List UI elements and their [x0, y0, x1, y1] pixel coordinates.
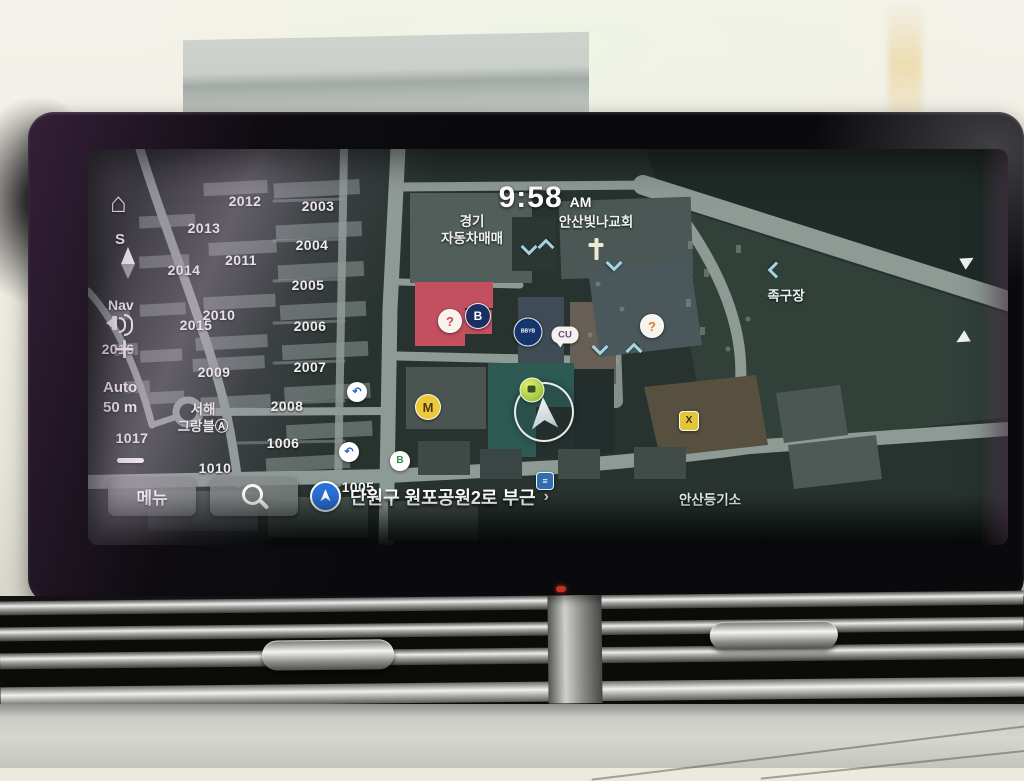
lane-chevron-icon [538, 239, 555, 256]
poi-brand-b[interactable]: B [465, 303, 491, 329]
poi-brand-red[interactable]: ? [438, 309, 462, 333]
address-chevron-icon: › [544, 488, 549, 506]
speed-camera-badge-icon [520, 378, 545, 403]
vent-slat [0, 617, 1024, 642]
zoom-scale-label: 50 m [103, 399, 137, 416]
map-parcel-number: 2012 [229, 193, 262, 209]
home-icon[interactable]: ⌂ [110, 189, 127, 217]
zoom-in-button[interactable]: + [114, 331, 135, 367]
clock-time: 9:58 [499, 181, 563, 215]
lane-chevron-icon [521, 239, 538, 256]
fascia-seam [761, 746, 1024, 779]
lane-chevron-icon [606, 255, 623, 272]
compass-letter: S [115, 231, 125, 248]
status-led [556, 586, 566, 592]
navigation-display[interactable]: 2012200320132004201120142005201020152006… [88, 149, 1008, 545]
zoom-out-button[interactable] [117, 458, 144, 463]
uturn-marker[interactable]: ↶ [347, 382, 367, 402]
current-address-bar[interactable]: 단원구 원포공원2로 부근 › [310, 481, 549, 512]
wall-glare [888, 0, 922, 118]
lower-fascia [0, 704, 1024, 768]
current-address: 단원구 원포공원2로 부근 [350, 484, 536, 510]
lane-chevron-icon [768, 262, 785, 279]
poi-brand-orange[interactable]: ? [640, 314, 664, 338]
poi-cu-store[interactable]: CU [552, 327, 579, 344]
map-parcel-number: 2005 [292, 277, 325, 293]
air-vents [0, 591, 1024, 712]
bottom-bar: 메뉴 단원구 원포공원2로 부근 › [88, 475, 1008, 519]
map-parcel-number: 1017 [116, 430, 149, 446]
map-place-label: 경기 자동차매매 [441, 214, 503, 248]
map-place-label: 족구장 [767, 289, 804, 306]
map-parcel-number: 2013 [188, 220, 221, 236]
search-icon [242, 484, 263, 505]
map-parcel-number: 2004 [296, 237, 329, 253]
map-parcel-number: 2015 [180, 317, 213, 333]
search-button[interactable] [210, 477, 298, 516]
nav-volume-label: Nav [108, 297, 134, 313]
map-parcel-number: 2008 [271, 398, 304, 414]
vent-divider [547, 595, 602, 704]
map-parcel-number: 2006 [294, 318, 327, 334]
map-parcel-number: 1006 [267, 435, 300, 451]
dashboard-fascia [0, 596, 1024, 768]
menu-button[interactable]: 메뉴 [108, 477, 196, 516]
dashboard-photo: 2012200320132004201120142005201020152006… [0, 0, 1024, 768]
map-parcel-number: 2014 [168, 262, 201, 278]
clock-meridiem: AM [570, 194, 592, 210]
poi-bank[interactable]: BBYB [514, 318, 543, 347]
wall-reflection [183, 32, 589, 121]
vent-slat [0, 643, 1024, 670]
church-cross-icon [589, 238, 604, 260]
zoom-mode-label: Auto [103, 379, 137, 396]
uturn-marker[interactable]: ↶ [339, 442, 359, 462]
gps-arrow-icon [310, 481, 341, 512]
lane-chevron-icon [592, 339, 609, 356]
poi-sports[interactable]: X [679, 411, 699, 431]
map-parcel-number: 2003 [302, 198, 335, 214]
head-unit-bezel: 2012200320132004201120142005201020152006… [28, 112, 1024, 604]
map-edge-arrow-icon [953, 330, 971, 348]
vent-slat [0, 677, 1024, 708]
vent-adjuster-right [710, 621, 838, 650]
map-parcel-number: 2009 [198, 364, 231, 380]
map-parcel-number: 1010 [199, 460, 232, 476]
map-place-label: 안산빛나교회 [559, 215, 634, 232]
map-edge-arrow-icon [959, 252, 977, 270]
clock: 9:58 AM [499, 181, 592, 215]
lane-chevron-icon [626, 343, 643, 360]
map-parcel-number: 2007 [294, 359, 327, 375]
poi-green-b[interactable]: B [390, 451, 410, 471]
poi-metro-m[interactable]: M [415, 394, 441, 420]
map-place-label: 서해 그랑블Ⓐ [178, 402, 229, 436]
vent-adjuster-left [262, 639, 394, 670]
map-parcel-number: 2011 [225, 252, 257, 268]
